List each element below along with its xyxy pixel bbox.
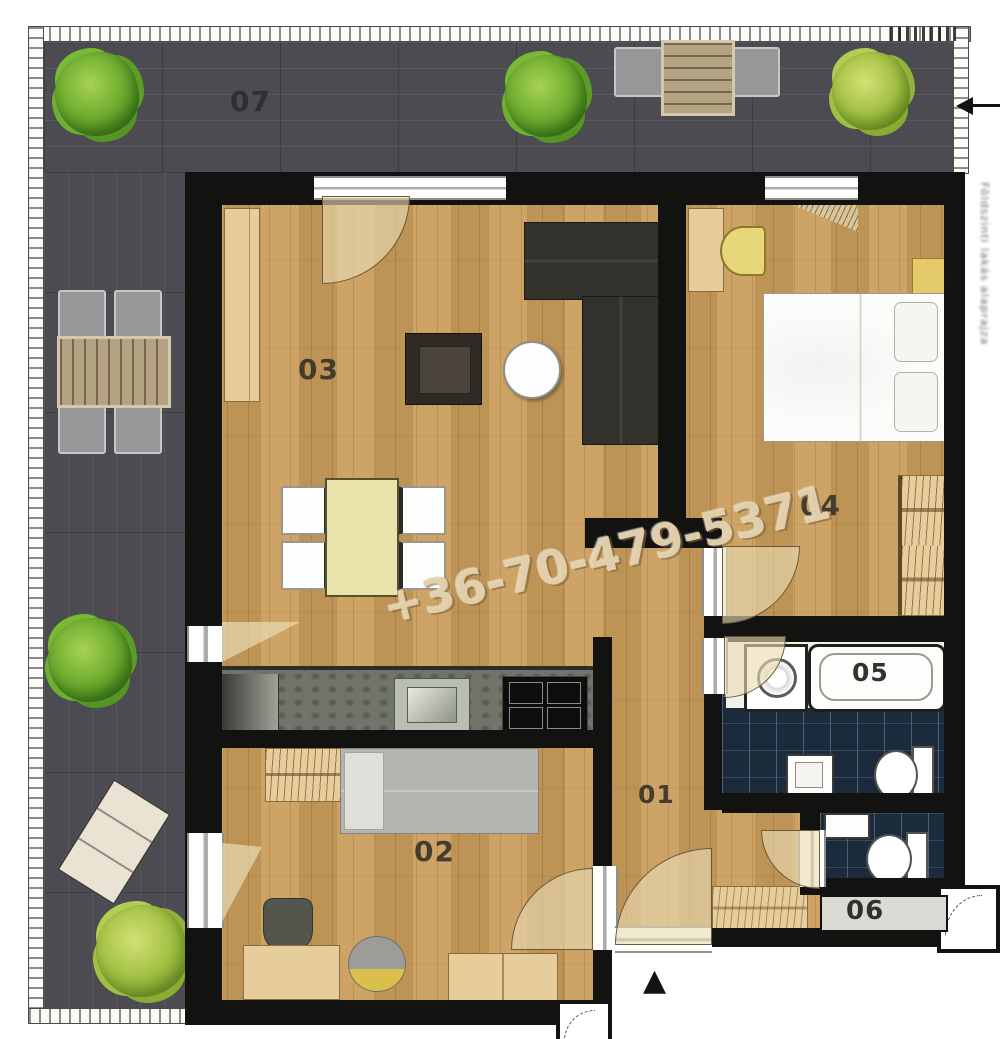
wardrobe-02: [265, 748, 345, 802]
room-label-06: 06: [846, 898, 884, 924]
pillow: [894, 302, 938, 362]
pouf-base: [349, 969, 405, 991]
fence-left: [28, 26, 44, 1024]
bed-double: [763, 293, 949, 442]
cooktop: [502, 676, 588, 734]
fridge: [222, 674, 279, 732]
side-vertical-note: Földszinti lakás alaprajza: [978, 182, 991, 432]
shoe-cabinet: [712, 886, 808, 930]
tree-icon: [48, 618, 132, 702]
corner-curve-icon: [945, 895, 982, 936]
outdoor-chair: [728, 47, 780, 97]
dining-chair: [281, 486, 329, 535]
sofa-top: [524, 222, 660, 300]
kitchen-sink: [394, 678, 470, 732]
coffee-table: [405, 333, 482, 405]
sink-basin: [407, 687, 457, 723]
wall-bathroom-wc: [722, 793, 944, 813]
exterior-bottom-right: [612, 945, 1000, 1039]
dresser-02: [448, 953, 558, 1001]
outdoor-chair: [114, 404, 162, 454]
sofa-right: [582, 296, 660, 445]
pillow: [894, 372, 938, 432]
burner: [509, 682, 543, 704]
tree-icon: [55, 52, 139, 136]
tree-icon: [505, 55, 587, 137]
tree-icon: [96, 905, 188, 997]
sink-basin: [795, 762, 823, 788]
outdoor-table: [57, 336, 171, 408]
floor-plan: 05: [0, 0, 1000, 1039]
door-terrace-bedroom02: [187, 833, 224, 928]
fence-corner-marks: [890, 27, 956, 41]
outdoor-table: [661, 40, 735, 116]
corner-curve-icon: [564, 1010, 595, 1039]
wardrobe-04: [898, 475, 949, 616]
toilet: [866, 834, 912, 884]
desk-02: [243, 945, 340, 1000]
fence-top: [28, 26, 971, 42]
wc-sink: [824, 813, 870, 839]
dining-chair: [398, 486, 446, 535]
coffee-table-top: [419, 346, 471, 394]
burner: [547, 682, 581, 704]
reference-arrow-line: [972, 104, 1000, 107]
door-terrace-living: [187, 626, 224, 662]
window-bedroom04: [765, 176, 858, 200]
wall-living-bedroom04: [658, 205, 686, 520]
sideboard: [224, 208, 260, 402]
terrace-deck-top: [44, 42, 953, 172]
outdoor-chair: [114, 290, 162, 340]
wall-wc-bottom: [820, 878, 944, 895]
wall-bottom-bedroom02: [185, 1000, 612, 1025]
room-label-03: 03: [298, 356, 339, 384]
dining-chair: [281, 541, 329, 590]
outdoor-chair: [58, 290, 106, 340]
burner: [547, 707, 581, 729]
armchair-bedroom-04: [720, 226, 766, 276]
round-side-table: [503, 341, 561, 399]
wall-exterior-right: [944, 172, 965, 945]
fence-bottom-left: [28, 1008, 190, 1024]
desk-bedroom-04: [688, 208, 724, 292]
door-hall-bedroom02: [591, 866, 618, 950]
kitchen-counter: [222, 666, 600, 736]
outdoor-chair: [58, 404, 106, 454]
reference-arrow-head-icon: [956, 97, 973, 115]
room-label-01: 01: [638, 782, 675, 807]
wall-kitchen: [185, 730, 612, 748]
room-label-07: 07: [230, 88, 271, 116]
outdoor-chair: [614, 47, 666, 97]
tree-icon: [832, 52, 910, 130]
desk-chair-02: [263, 898, 313, 952]
entry-direction-arrow: ▲: [643, 966, 666, 996]
burner: [509, 707, 543, 729]
pillow: [344, 752, 384, 830]
entry-corner-box: [556, 1000, 612, 1039]
room-label-05: 05: [852, 660, 889, 685]
room-label-02: 02: [414, 838, 455, 866]
nightstand-04: [912, 258, 946, 294]
pouf: [348, 936, 406, 992]
bed-single: [340, 748, 539, 834]
